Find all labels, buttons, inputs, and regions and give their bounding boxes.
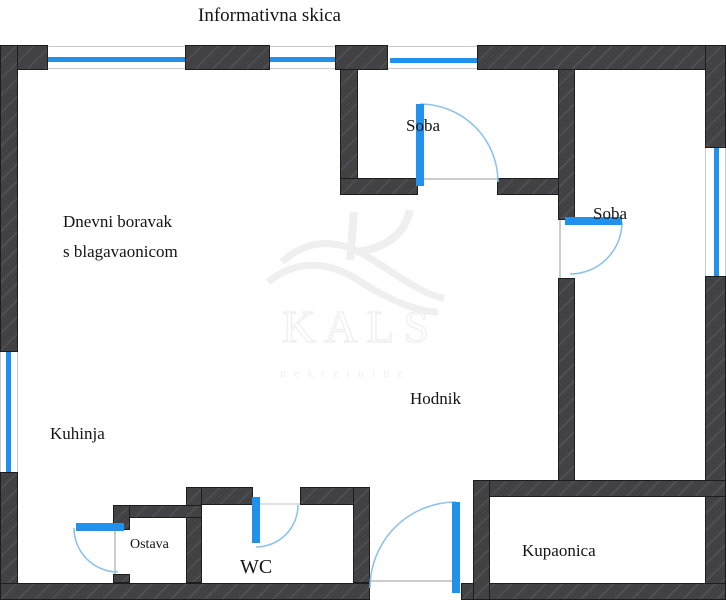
door-arc-pantry — [74, 528, 118, 572]
room-label-hallway: Hodnik — [410, 389, 461, 409]
room-label-bedroom-right: Soba — [593, 204, 627, 224]
door-arc-entry — [370, 502, 456, 588]
room-label-bathroom: Kupaonica — [522, 541, 596, 561]
page-title: Informativna skica — [198, 5, 341, 27]
door-leaf-entry — [452, 502, 460, 593]
floorplan-canvas: KALS nekretnine — [0, 0, 726, 600]
door-leaf-wc — [252, 497, 260, 543]
room-label-bedroom-top: Soba — [406, 116, 440, 136]
door-leaf-pantry — [76, 523, 124, 531]
door-swing-arcs — [0, 0, 726, 600]
room-label-living-line1: Dnevni boravak — [63, 212, 172, 232]
door-arc-wc — [256, 505, 298, 547]
room-label-pantry: Ostava — [130, 537, 169, 553]
door-arc-bedroom-right — [570, 222, 622, 274]
room-label-living-line2: s blagavaonicom — [63, 242, 178, 262]
room-label-kitchen: Kuhinja — [50, 424, 105, 444]
room-label-wc: WC — [240, 556, 272, 579]
